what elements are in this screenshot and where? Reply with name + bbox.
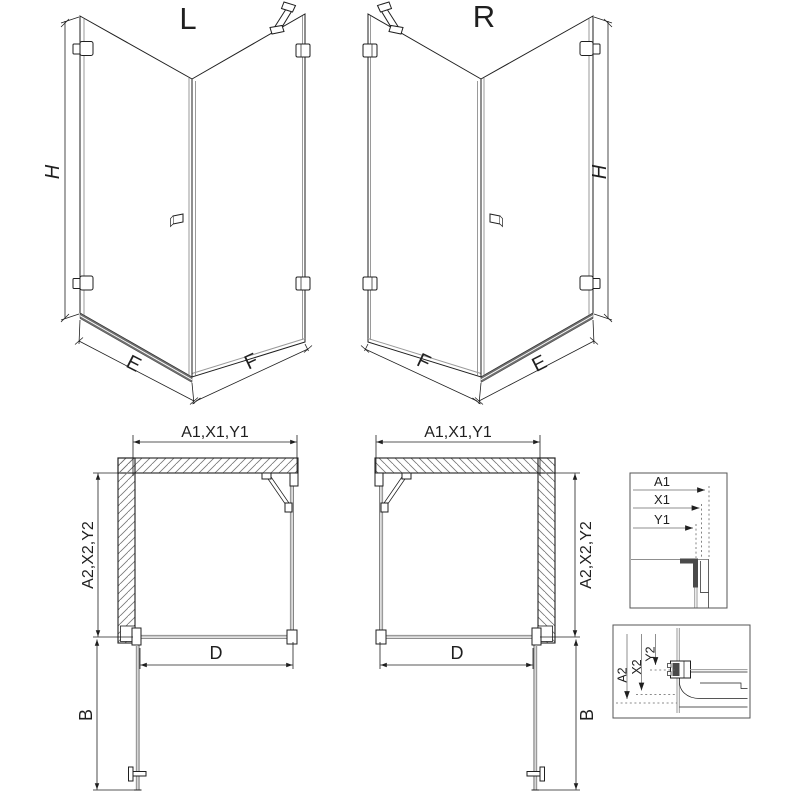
detail-width-profile	[631, 559, 709, 608]
enclosure-plan-right	[375, 435, 580, 790]
detail-depth-offsets: A2 X2 Y2	[613, 625, 750, 718]
dim-label-door-swing-left: B	[76, 709, 96, 721]
view-iso-right: R H E F	[361, 0, 612, 405]
detail-label-a1: A1	[654, 474, 670, 489]
technical-drawing: L H E F R H E F A1,X1,Y1 A2,X2,Y2 D B A1…	[0, 0, 800, 800]
dim-label-door-width-left: E	[123, 351, 145, 377]
dim-label-install-width-right: A1,X1,Y1	[424, 424, 492, 441]
dim-label-height-left: H	[42, 164, 64, 179]
view-plan-left: A1,X1,Y1 A2,X2,Y2 D B	[76, 424, 298, 790]
detail-label-y2: Y2	[644, 646, 658, 661]
dim-label-install-width-left: A1,X1,Y1	[181, 424, 249, 441]
detail-label-x2: X2	[630, 659, 644, 674]
enclosure-iso-right	[361, 2, 612, 405]
dim-label-door-swing-right: B	[577, 709, 597, 721]
dim-label-door-width-right: E	[529, 351, 551, 377]
dim-label-install-depth-left: A2,X2,Y2	[80, 521, 97, 589]
detail-frame-width	[630, 473, 727, 608]
enclosure-plan-left	[93, 435, 298, 790]
detail-label-x1: X1	[654, 492, 670, 507]
detail-label-y1: Y1	[654, 512, 670, 527]
detail-depth-profile	[668, 628, 748, 713]
dim-label-install-depth-right: A2,X2,Y2	[578, 521, 595, 589]
enclosure-iso-left	[61, 2, 312, 405]
detail-label-a2: A2	[616, 667, 630, 682]
variant-label-right: R	[473, 0, 495, 34]
dim-label-fixed-panel-left: D	[210, 643, 223, 663]
detail-width-reference-lines	[696, 486, 709, 558]
view-iso-left: L H E F	[42, 1, 312, 405]
dim-label-fixed-panel-right: D	[451, 643, 464, 663]
variant-label-left: L	[179, 1, 196, 36]
dim-label-height-right: H	[589, 164, 611, 179]
view-plan-right: A1,X1,Y1 A2,X2,Y2 D B	[375, 424, 597, 790]
detail-width-offsets: A1 X1 Y1	[630, 473, 727, 608]
